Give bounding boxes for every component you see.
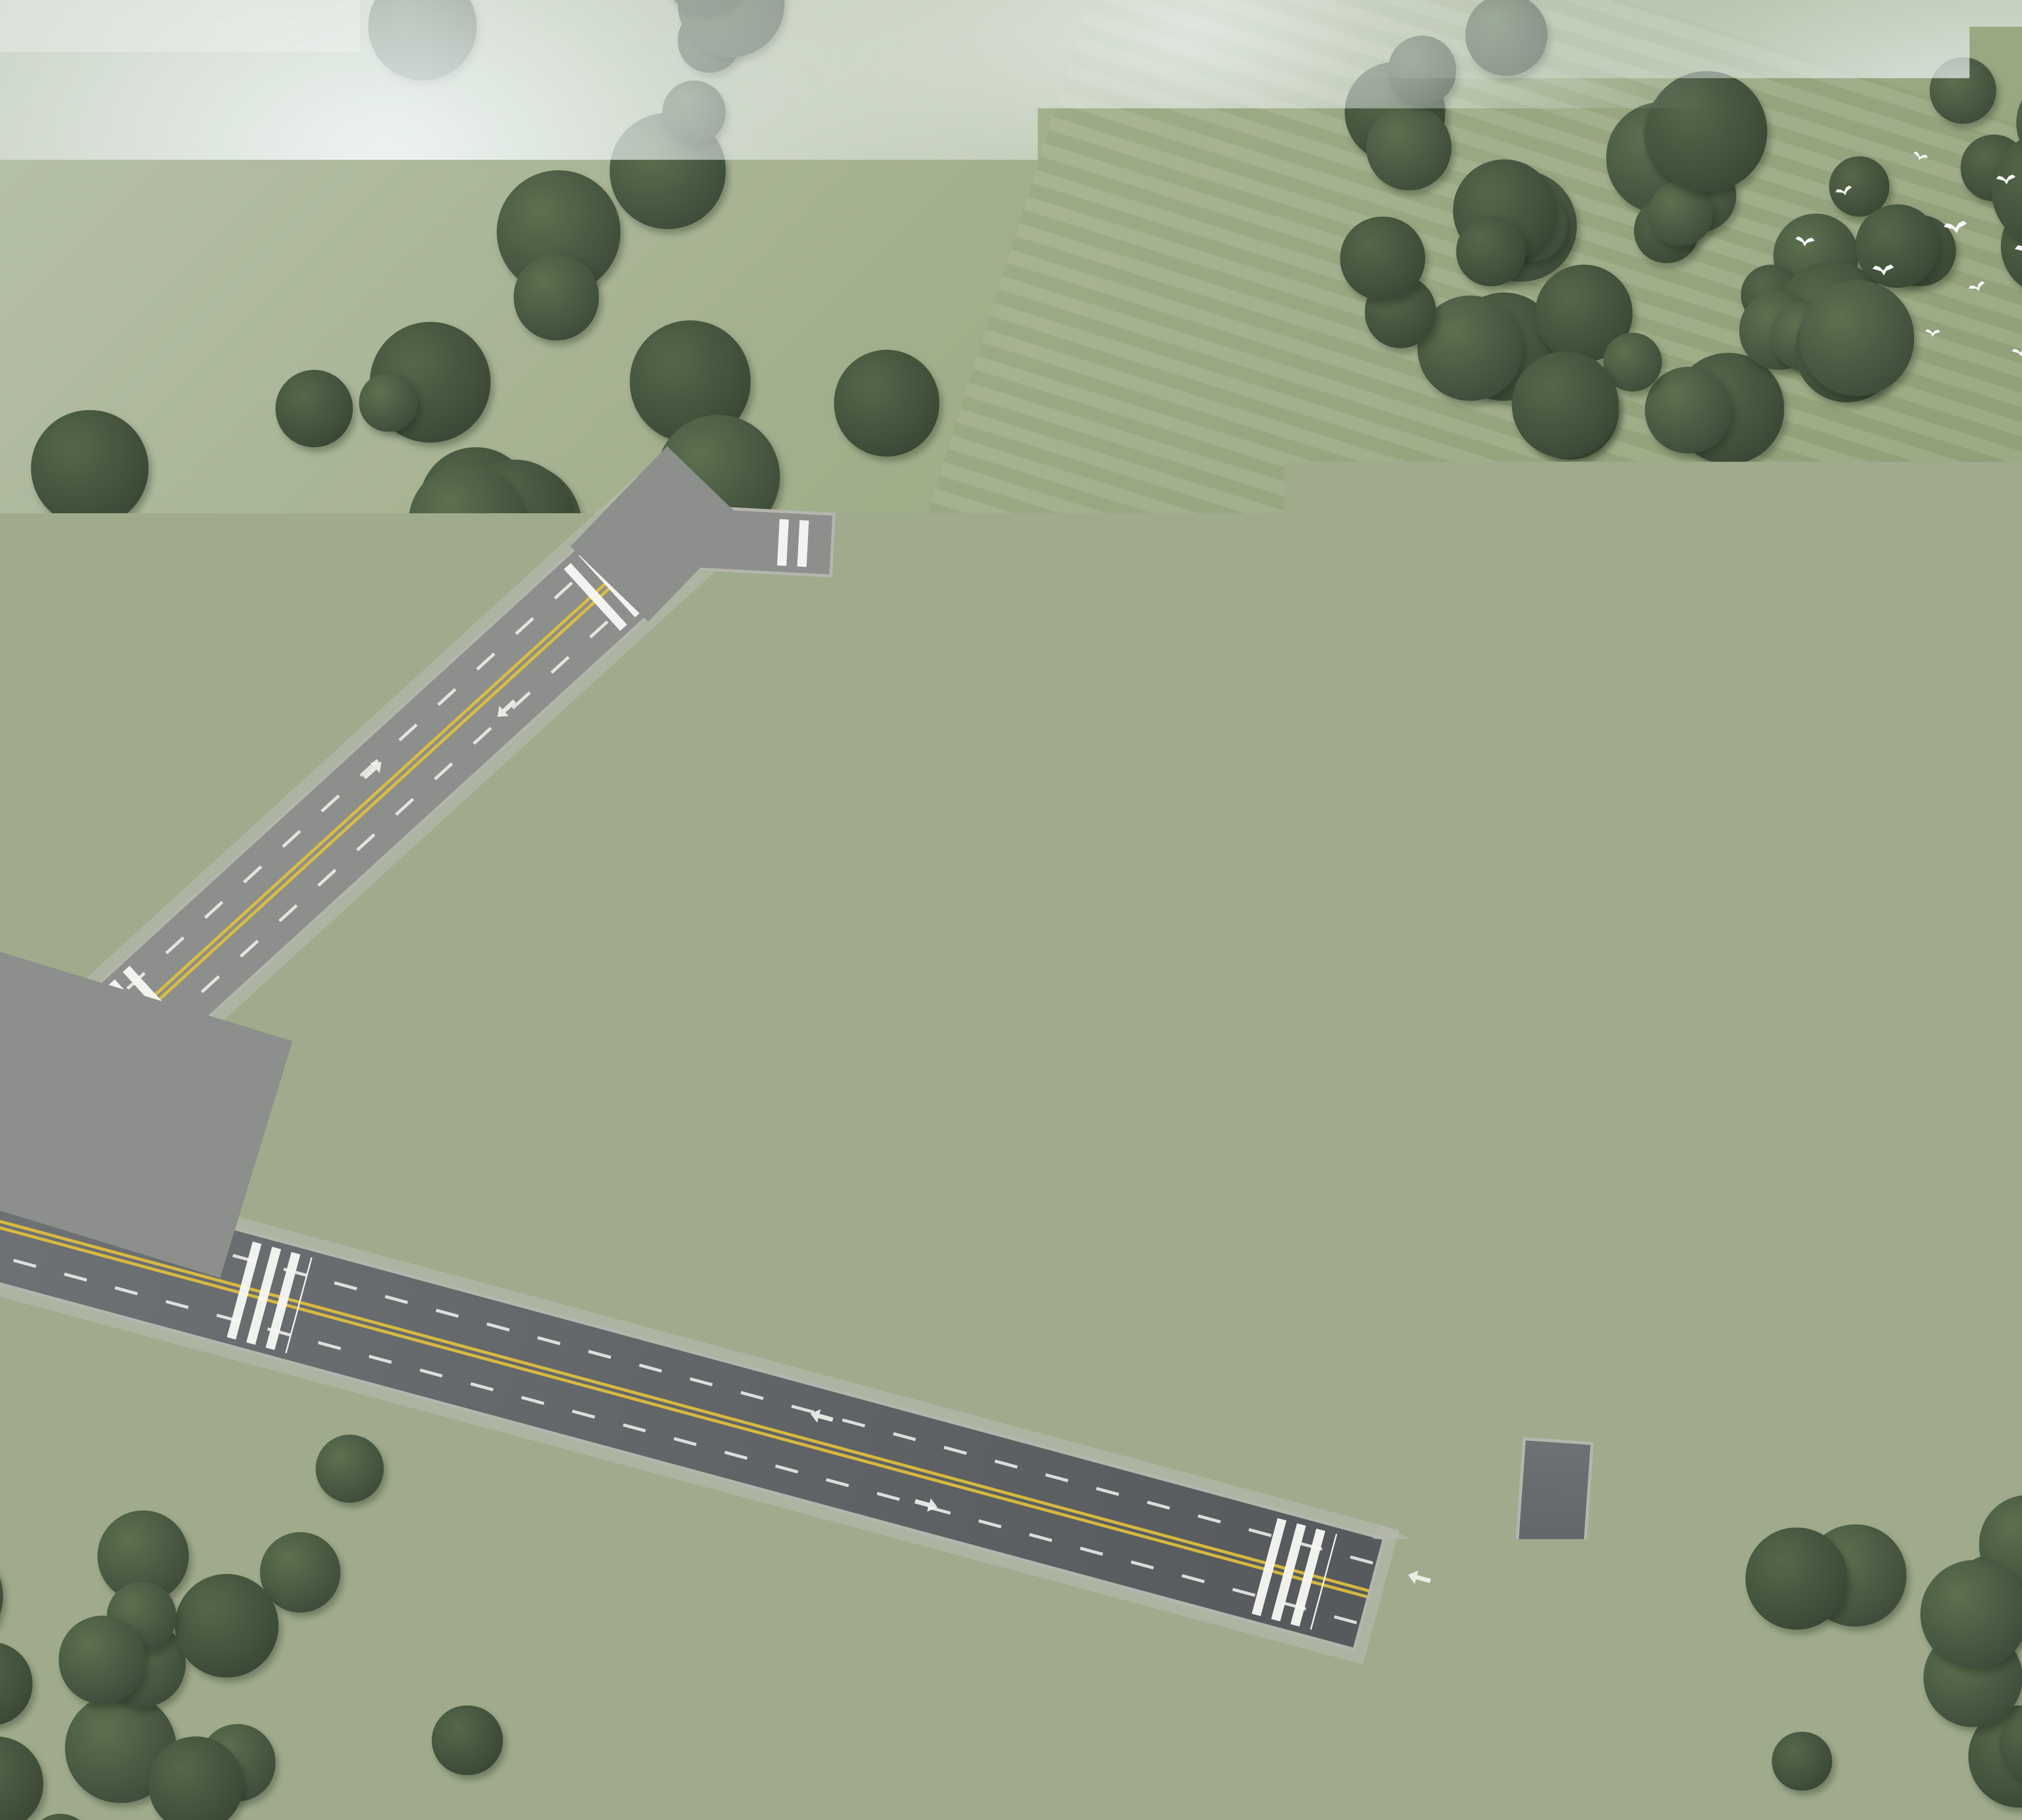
tree: [1020, 471, 1055, 495]
tree: [954, 810, 987, 832]
tree: [1059, 858, 1098, 884]
tree: [486, 927, 548, 970]
lane-arrow: [493, 696, 519, 722]
tree: [1430, 833, 1479, 866]
tree: [961, 1170, 1014, 1206]
tree: [1158, 545, 1211, 582]
tree: [1616, 749, 1660, 779]
tree: [1351, 908, 1407, 947]
tree: [1309, 980, 1356, 1012]
exhaust-stack: [1191, 442, 1196, 616]
tree: [599, 804, 650, 839]
tree: [1118, 737, 1164, 768]
tree: [1675, 1029, 1711, 1054]
tree: [1241, 575, 1290, 609]
tree: [1190, 730, 1239, 763]
tree: [1241, 804, 1292, 839]
tree: [706, 663, 762, 702]
tree: [956, 1125, 996, 1152]
tree: [1678, 776, 1712, 799]
tree: [1399, 984, 1443, 1014]
tree: [1236, 1052, 1292, 1090]
tree: [1911, 944, 1962, 978]
tree: [857, 926, 916, 967]
tree: [885, 774, 920, 798]
tree: [1490, 1028, 1532, 1056]
tree: [1681, 1047, 1734, 1083]
tree: [1048, 798, 1105, 837]
tree: [1017, 923, 1059, 952]
lane-arrow: [360, 757, 386, 783]
tree: [1392, 686, 1430, 711]
tree: [1049, 636, 1099, 670]
tree: [763, 605, 811, 638]
tree: [1060, 1168, 1104, 1198]
tree: [1946, 885, 2004, 925]
tree: [1168, 698, 1210, 727]
tree: [1022, 1140, 1062, 1167]
tree: [1744, 1144, 1802, 1184]
tree: [1323, 1064, 1377, 1100]
tree: [1614, 916, 1667, 952]
tree: [1054, 1196, 1121, 1242]
tree: [1743, 1098, 1778, 1122]
tree: [683, 1044, 730, 1077]
tree: [1445, 910, 1498, 946]
tree: [932, 601, 968, 625]
tree: [656, 728, 717, 770]
tree: [983, 885, 1030, 917]
tree: [1652, 1072, 1694, 1101]
tree: [491, 1017, 545, 1054]
tree: [865, 576, 906, 604]
tree: [1796, 813, 1839, 842]
tree: [1687, 1208, 1745, 1248]
scene-canvas: [0, 0, 2022, 1820]
tree: [1257, 1149, 1295, 1175]
tree: [1312, 923, 1351, 950]
tree: [900, 1098, 943, 1127]
tree: [1288, 876, 1333, 907]
tree: [1125, 548, 1162, 572]
tree: [542, 866, 605, 909]
tree: [1741, 795, 1780, 821]
tree: [1848, 1019, 1904, 1057]
tree: [1521, 827, 1560, 854]
tree: [1636, 946, 1685, 979]
crosswalk: [1563, 1647, 1660, 1763]
tree: [1475, 765, 1524, 798]
tree: [1650, 977, 1696, 1008]
tree: [1043, 707, 1089, 739]
tree: [1176, 1130, 1235, 1170]
tree: [1876, 831, 1909, 853]
tree: [1440, 705, 1472, 728]
tree: [1525, 1319, 1570, 1350]
tree: [438, 990, 494, 1029]
tree: [975, 781, 1029, 817]
aerial-render: [0, 0, 2022, 1820]
tree: [1109, 627, 1163, 664]
tree: [1570, 1056, 1611, 1084]
tree: [1070, 507, 1113, 536]
tree: [580, 1035, 640, 1076]
tree: [1796, 1077, 1840, 1107]
tree: [648, 1017, 682, 1041]
tree: [913, 1048, 951, 1074]
tree: [776, 1099, 844, 1145]
tree: [1634, 1281, 1690, 1319]
lane-arrow: [971, 174, 996, 201]
tree: [1440, 1298, 1483, 1327]
tree: [874, 1133, 932, 1172]
tree: [990, 626, 1035, 657]
tree: [797, 1008, 844, 1040]
tree: [742, 739, 776, 762]
lane-arrow: [878, 218, 904, 245]
tree: [810, 541, 856, 572]
tree: [908, 859, 967, 899]
tree: [1656, 1002, 1703, 1034]
tree: [1265, 837, 1310, 868]
tree: [610, 1002, 647, 1027]
tree: [1541, 679, 1597, 718]
tree: [820, 760, 850, 781]
tree: [1225, 767, 1262, 792]
tree: [1334, 662, 1365, 684]
tree: [861, 472, 910, 506]
